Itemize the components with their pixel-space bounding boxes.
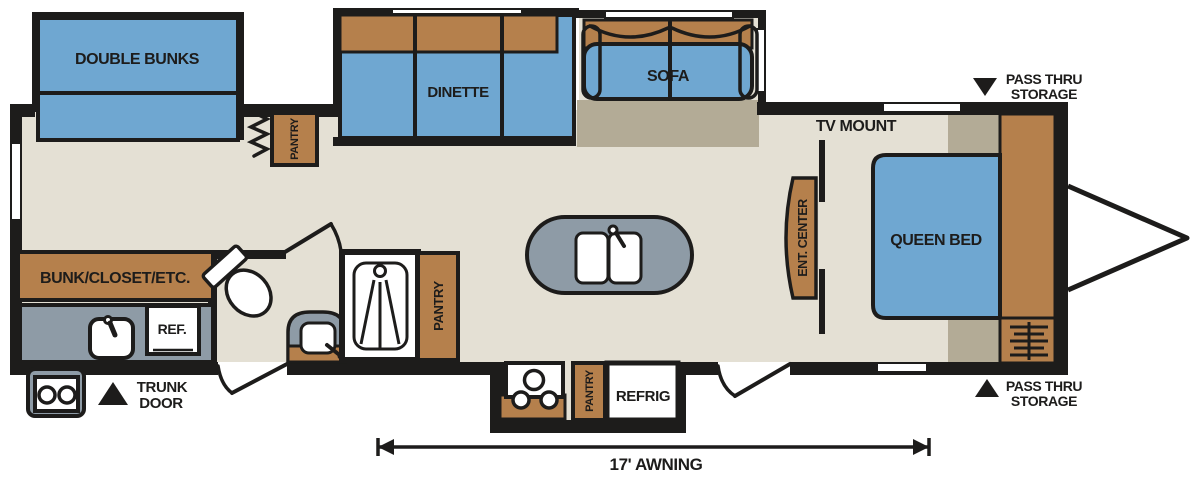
entry-door-panel: [735, 364, 790, 396]
entry-door-arc: [218, 366, 232, 393]
burner-icon: [525, 371, 544, 390]
pass-thru-top-label-2: STORAGE: [1011, 86, 1077, 102]
kitchen-island: [527, 217, 692, 293]
wall-segment: [1055, 102, 1068, 375]
rear-room: BUNK/CLOSET/ETC. REF.: [18, 252, 213, 362]
floorplan-page: DOUBLE BUNKS DINETTE SOFA PANTRY BUNK/CL…: [0, 0, 1200, 481]
wall-segment: [10, 104, 35, 117]
shower-head-icon: [375, 266, 386, 277]
pass-thru-top-label-1: PASS THRU: [1006, 71, 1083, 87]
window: [11, 143, 21, 220]
island-sink-basin: [609, 233, 641, 283]
island-sink-basin: [576, 233, 608, 283]
awning-arrowhead: [913, 439, 929, 455]
hanging-rod-icon: [1010, 322, 1048, 360]
bunk-bed: [38, 18, 238, 140]
burner-icon: [541, 392, 557, 408]
dinette-backrest: [340, 15, 557, 52]
pass-thru-bottom-triangle-icon: [975, 379, 999, 397]
wall-segment: [685, 362, 718, 375]
tank-icon: [59, 387, 75, 403]
tv-wall-segment: [819, 269, 825, 334]
trunk-door-label-1: TRUNK: [137, 379, 188, 396]
window: [605, 11, 733, 18]
trunk-door-label-2: DOOR: [139, 395, 183, 412]
double-bunks: DOUBLE BUNKS: [38, 18, 238, 140]
pass-thru-bottom-label-1: PASS THRU: [1006, 378, 1083, 394]
bedroom-closet: [1000, 114, 1055, 318]
tv-mount-label: TV MOUNT: [816, 118, 897, 135]
window: [883, 103, 961, 112]
trunk-door-triangle-icon: [98, 382, 128, 405]
bunk-closet-label: BUNK/CLOSET/ETC.: [40, 270, 190, 287]
pass-thru-top-triangle-icon: [973, 78, 997, 96]
pantry-label: PANTRY: [584, 369, 596, 412]
kitchen-pantry: PANTRY: [418, 253, 458, 360]
wall-segment: [287, 362, 503, 375]
dinette-label: DINETTE: [427, 84, 489, 101]
pantry-label: PANTRY: [431, 280, 446, 330]
tank-icon: [39, 387, 55, 403]
tv-wall-segment: [819, 140, 825, 202]
floorplan-svg: DOUBLE BUNKS DINETTE SOFA PANTRY BUNK/CL…: [0, 0, 1200, 481]
burner-icon: [513, 392, 529, 408]
awning-arrowhead: [378, 439, 394, 455]
queen-bed-label: QUEEN BED: [890, 232, 982, 249]
window: [877, 363, 927, 372]
pass-thru-bottom-label-2: STORAGE: [1011, 393, 1077, 409]
sofa: SOFA: [583, 20, 757, 99]
ent-center-label: ENT. CENTER: [796, 199, 810, 277]
refrig-label: REFRIG: [616, 388, 670, 405]
outdoor-kitchen: PANTRY REFRIG: [500, 363, 678, 420]
entry-door-arc: [718, 366, 735, 396]
sofa-label: SOFA: [647, 68, 690, 85]
passthru-floor-top: [948, 114, 1001, 156]
awning-label: 17' AWNING: [610, 455, 703, 474]
entry-door-panel: [232, 364, 287, 393]
ref-label: REF.: [158, 321, 187, 337]
awning-dimension: 17' AWNING: [378, 438, 929, 474]
passthru-floor-bottom: [948, 317, 1001, 363]
sofa-slide-floor-shadow: [577, 100, 759, 147]
hitch-a-frame: [1068, 186, 1187, 290]
dinette: DINETTE: [340, 15, 574, 138]
pantry-label: PANTRY: [289, 117, 301, 160]
double-bunks-label: DOUBLE BUNKS: [75, 51, 200, 68]
